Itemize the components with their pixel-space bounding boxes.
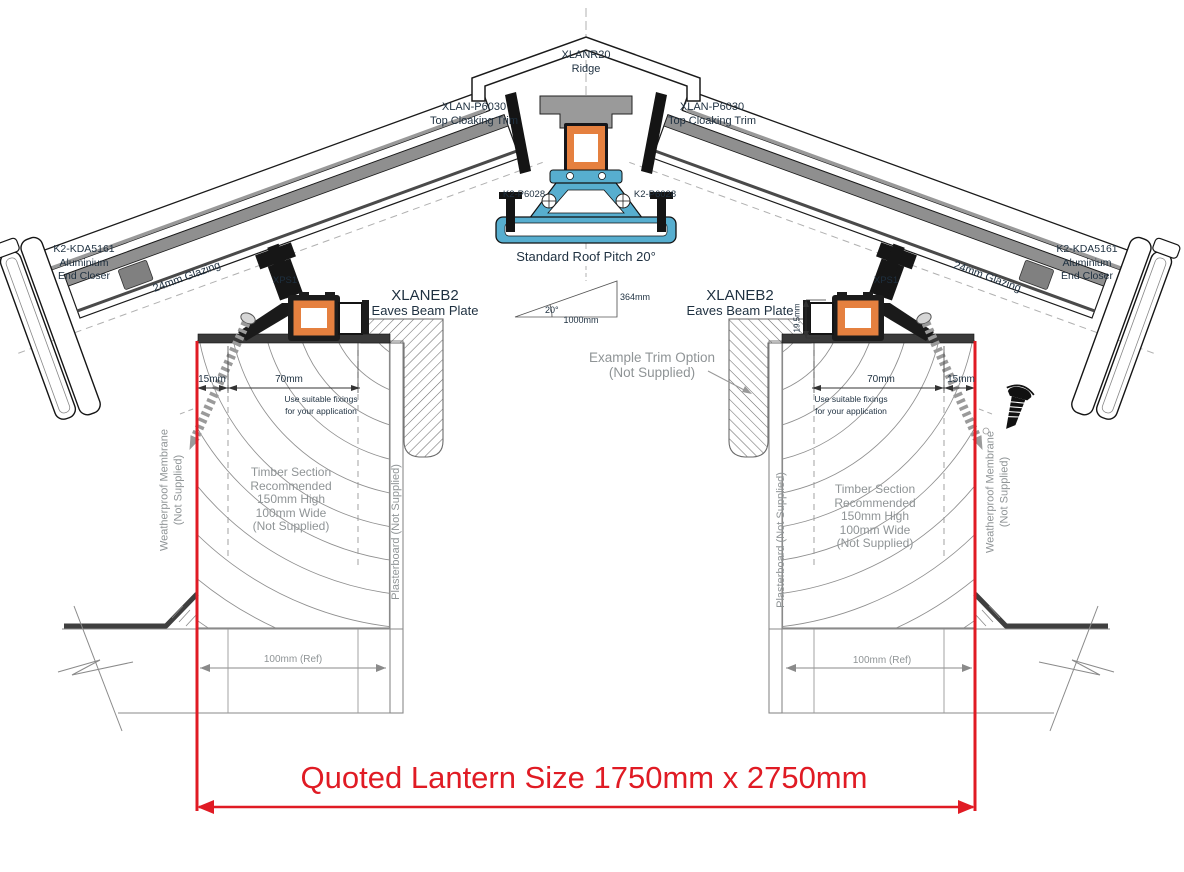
ridge-code-label: XLANR20 <box>562 50 611 61</box>
end-closer-line2-right: End Closer <box>1061 271 1113 282</box>
timber-note3-right: 150mm High <box>841 510 909 522</box>
cloaking-code-right: XLAN-P6030 <box>680 102 744 113</box>
cloaking-name-right: Top Cloaking Trim <box>668 116 756 127</box>
cloaking-code-left: XLAN-P6030 <box>442 102 506 113</box>
timber-note5-right: (Not Supplied) <box>837 537 914 549</box>
clip-label-right: K2-P6028 <box>634 190 676 200</box>
timber-note5-left: (Not Supplied) <box>253 520 330 532</box>
ridge-name-label: Ridge <box>572 64 601 75</box>
dim-15-left: 15mm <box>198 375 226 385</box>
membrane-line2: (Not Supplied) <box>998 431 1012 553</box>
xps-label-right: XPS1 <box>874 276 898 286</box>
trim-option-line2: (Not Supplied) <box>609 366 695 380</box>
xps-label-left: XPS1 <box>273 276 297 286</box>
pitch-run-label: 1000mm <box>563 316 598 325</box>
dim-70-left: 70mm <box>275 375 303 385</box>
clip-label-left: K2-P6028 <box>503 190 545 200</box>
technical-drawing-page: XLANR20 Ridge XLAN-P6030 Top Cloaking Tr… <box>0 0 1184 872</box>
cloaking-name-left: Top Cloaking Trim <box>430 116 518 127</box>
fixings-note1-left: Use suitable fixings <box>284 395 357 404</box>
end-closer-code-left: K2-KDA5161 <box>53 244 114 255</box>
quoted-size-dimension <box>197 800 975 814</box>
trim-option-line1: Example Trim Option <box>589 351 715 365</box>
timber-note4-right: 100mm Wide <box>840 524 911 536</box>
dim-70-right: 70mm <box>867 375 895 385</box>
eaves-name-right: Eaves Beam Plate <box>687 304 794 317</box>
membrane-line2: (Not Supplied) <box>172 429 186 551</box>
pitch-title: Standard Roof Pitch 20° <box>516 250 656 263</box>
dim-beam-height: 19.5mm <box>793 304 802 333</box>
plasterboard-label-left: Plasterboard (Not Supplied) <box>390 464 402 600</box>
quoted-lantern-size: Quoted Lantern Size 1750mm x 2750mm <box>301 762 868 793</box>
timber-note1-right: Timber Section <box>835 483 915 495</box>
eaves-name-left: Eaves Beam Plate <box>372 304 479 317</box>
fixings-note2-right: for your application <box>815 407 887 416</box>
pitch-angle-label: 20° <box>545 305 559 315</box>
membrane-label-right: Weatherproof Membrane (Not Supplied) <box>984 431 1012 553</box>
timber-note2-left: Recommended <box>250 480 331 492</box>
timber-note4-left: 100mm Wide <box>256 507 327 519</box>
kerb-ref-right: 100mm (Ref) <box>853 656 911 666</box>
membrane-line1: Weatherproof Membrane <box>984 431 998 553</box>
end-closer-line1-right: Aluminium <box>1062 258 1111 269</box>
timber-note2-right: Recommended <box>834 497 915 509</box>
eaves-code-right: XLANEB2 <box>706 288 774 303</box>
fixings-note2-left: for your application <box>285 407 357 416</box>
end-closer-line2-left: End Closer <box>58 271 110 282</box>
end-closer-line1-left: Aluminium <box>59 258 108 269</box>
timber-note1-left: Timber Section <box>251 466 331 478</box>
plasterboard-label-right: Plasterboard (Not Supplied) <box>775 472 787 608</box>
kerb-ref-left: 100mm (Ref) <box>264 655 322 665</box>
screw-icon <box>983 382 1035 434</box>
timber-note3-left: 150mm High <box>257 493 325 505</box>
eaves-code-left: XLANEB2 <box>391 288 459 303</box>
fixings-note1-right: Use suitable fixings <box>814 395 887 404</box>
membrane-line1: Weatherproof Membrane <box>158 429 172 551</box>
pitch-triangle <box>515 281 617 317</box>
pitch-rise-label: 364mm <box>620 292 650 302</box>
end-closer-code-right: K2-KDA5161 <box>1056 244 1117 255</box>
dim-15-right: 15mm <box>947 375 975 385</box>
membrane-label-left: Weatherproof Membrane (Not Supplied) <box>158 429 186 551</box>
